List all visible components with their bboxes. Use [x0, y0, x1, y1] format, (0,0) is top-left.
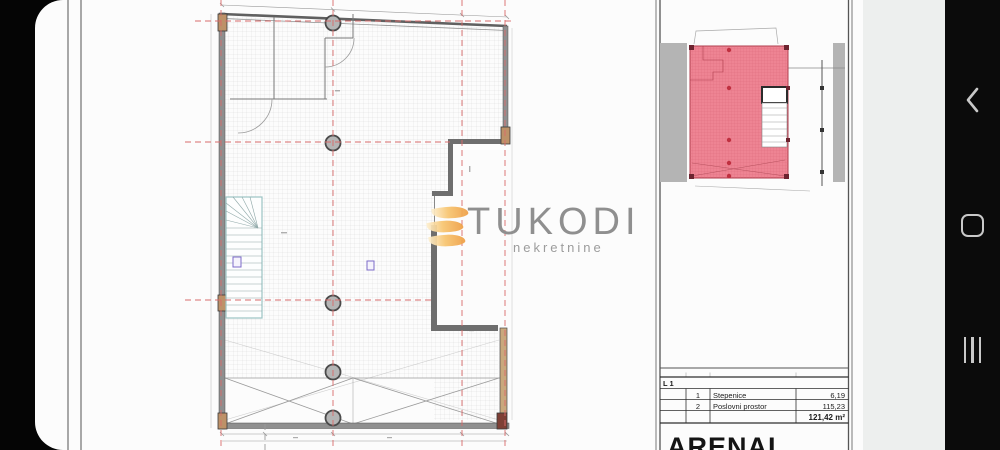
total-area: 121,42 m² — [786, 413, 845, 423]
recents-icon — [964, 337, 982, 363]
row-number: 1 — [686, 391, 710, 401]
logo-leaf-icon — [426, 217, 464, 236]
home-button[interactable] — [945, 214, 1000, 237]
back-button[interactable] — [945, 86, 1000, 114]
logo-leaf-icon — [431, 203, 469, 222]
document-viewer[interactable]: TUKODI nekretnine L 1 1 Stepenice 6,19 2… — [35, 0, 945, 450]
android-navbar — [945, 0, 1000, 450]
row-area: 6,19 — [796, 391, 845, 401]
recents-button[interactable] — [945, 337, 1000, 363]
row-number: 2 — [686, 402, 710, 412]
row-area: 115,23 — [796, 402, 845, 412]
row-name: Poslovni prostor — [713, 402, 767, 412]
row-name: Stepenice — [713, 391, 746, 401]
chevron-left-icon — [963, 86, 983, 114]
site-plan — [660, 28, 845, 196]
home-icon — [961, 214, 984, 237]
phone-screenshot: TUKODI nekretnine L 1 1 Stepenice 6,19 2… — [0, 0, 1000, 450]
watermark-tagline: nekretnine — [513, 240, 604, 255]
watermark: TUKODI nekretnine — [425, 200, 665, 260]
level-label: L 1 — [663, 379, 674, 389]
project-title: ARENAL — [667, 432, 786, 450]
watermark-brand: TUKODI — [467, 201, 641, 244]
logo-leaf-icon — [428, 231, 466, 250]
